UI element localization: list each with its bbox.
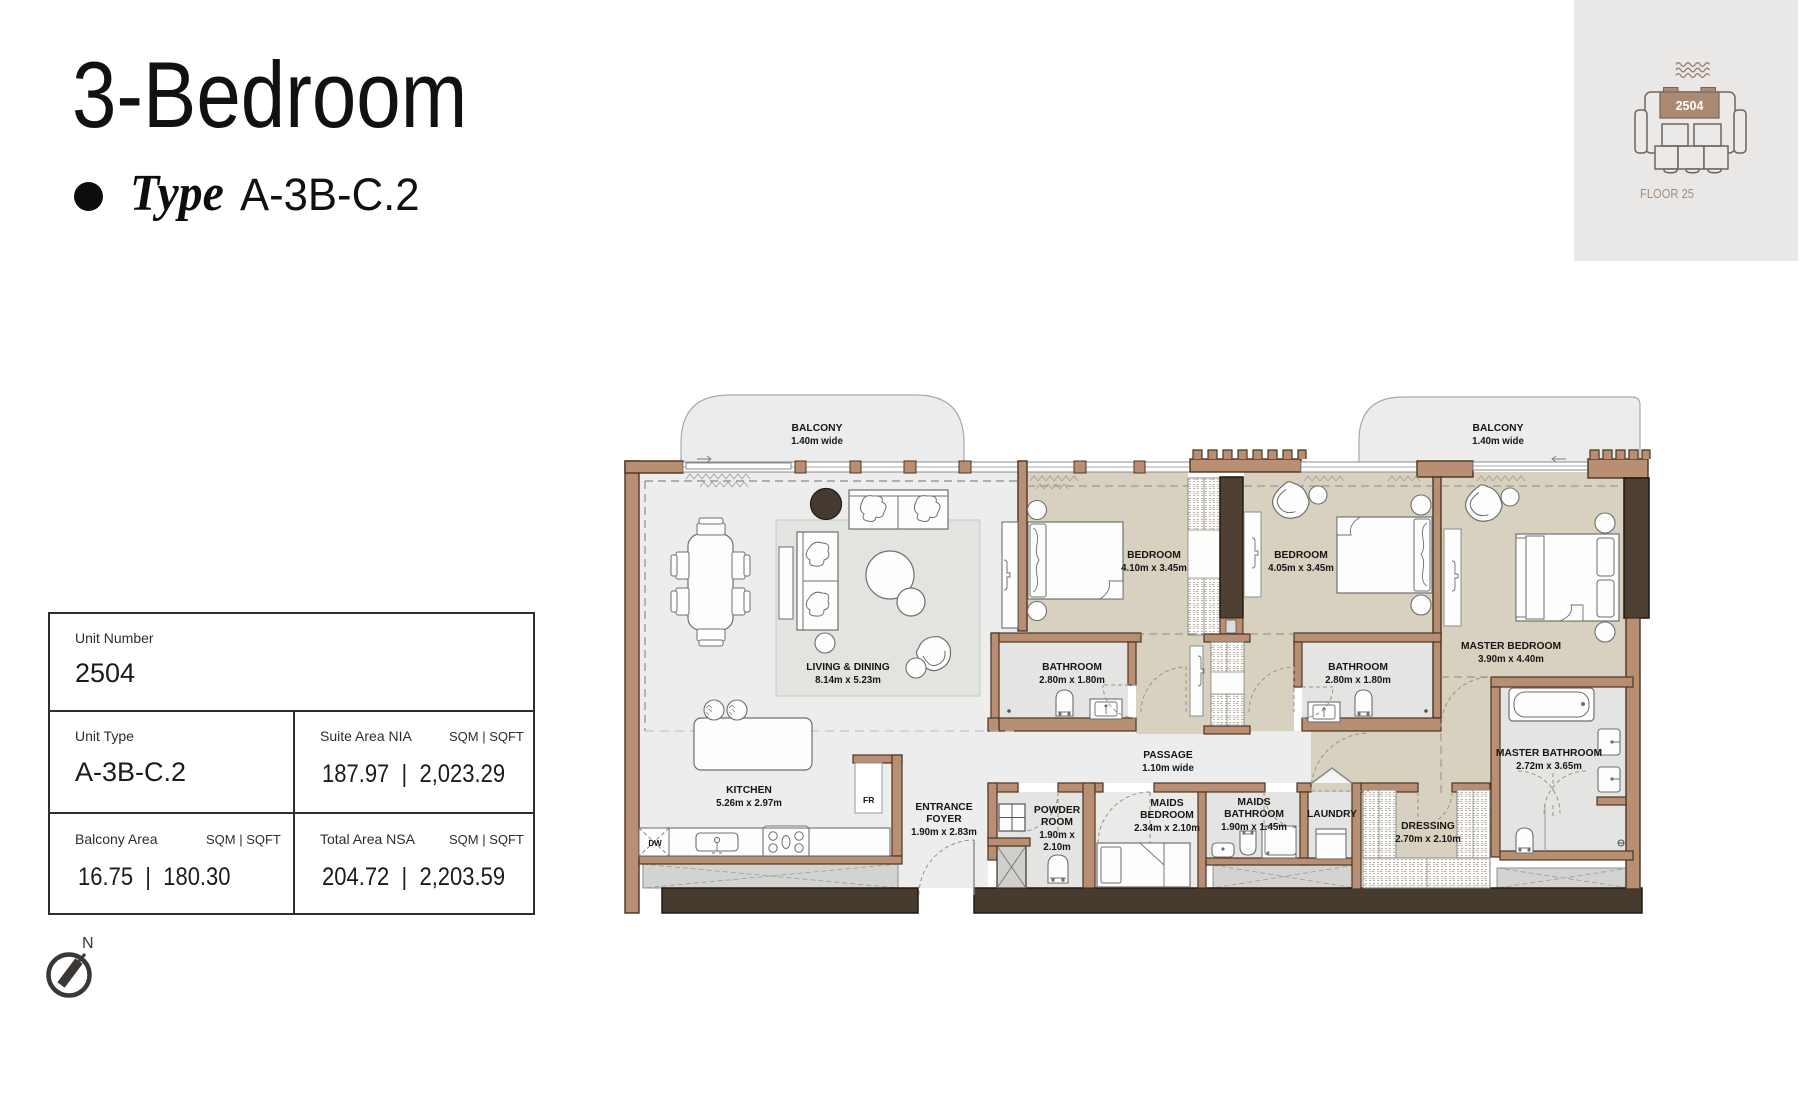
svg-text:1.90m x 1.45m: 1.90m x 1.45m xyxy=(1221,822,1287,833)
svg-text:ENTRANCE: ENTRANCE xyxy=(915,802,972,813)
svg-text:BEDROOM: BEDROOM xyxy=(1274,550,1328,561)
svg-text:2.72m x 3.65m: 2.72m x 3.65m xyxy=(1516,761,1582,772)
svg-text:BATHROOM: BATHROOM xyxy=(1224,809,1284,820)
svg-text:FOYER: FOYER xyxy=(926,814,962,825)
svg-text:BATHROOM: BATHROOM xyxy=(1328,662,1388,673)
svg-text:FR: FR xyxy=(863,795,874,805)
svg-text:2.10m: 2.10m xyxy=(1043,842,1071,853)
svg-text:BALCONY: BALCONY xyxy=(1473,423,1524,434)
svg-text:2.80m x 1.80m: 2.80m x 1.80m xyxy=(1325,675,1391,686)
svg-text:BEDROOM: BEDROOM xyxy=(1140,810,1194,821)
svg-text:LIVING & DINING: LIVING & DINING xyxy=(806,662,890,673)
svg-text:1.40m wide: 1.40m wide xyxy=(1472,436,1524,447)
svg-text:MASTER BEDROOM: MASTER BEDROOM xyxy=(1461,641,1561,652)
svg-text:4.05m x 3.45m: 4.05m x 3.45m xyxy=(1268,563,1334,574)
svg-text:DRESSING: DRESSING xyxy=(1401,821,1455,832)
svg-text:5.26m x 2.97m: 5.26m x 2.97m xyxy=(716,798,782,809)
svg-text:MAIDS: MAIDS xyxy=(1237,797,1270,808)
svg-text:LAUNDRY: LAUNDRY xyxy=(1307,809,1357,820)
svg-text:1.90m x 2.83m: 1.90m x 2.83m xyxy=(911,827,977,838)
svg-text:MAIDS: MAIDS xyxy=(1150,798,1183,809)
svg-text:2.34m x 2.10m: 2.34m x 2.10m xyxy=(1134,823,1200,834)
svg-text:BEDROOM: BEDROOM xyxy=(1127,550,1181,561)
svg-text:KITCHEN: KITCHEN xyxy=(726,785,772,796)
svg-text:ROOM: ROOM xyxy=(1041,817,1073,828)
svg-text:3.90m x 4.40m: 3.90m x 4.40m xyxy=(1478,654,1544,665)
svg-text:BATHROOM: BATHROOM xyxy=(1042,662,1102,673)
svg-text:BALCONY: BALCONY xyxy=(792,423,843,434)
svg-text:DW: DW xyxy=(648,839,662,848)
svg-text:2.80m x 1.80m: 2.80m x 1.80m xyxy=(1039,675,1105,686)
svg-text:1.10m wide: 1.10m wide xyxy=(1142,763,1194,774)
svg-text:1.90m x: 1.90m x xyxy=(1039,830,1075,841)
svg-text:8.14m x 5.23m: 8.14m x 5.23m xyxy=(815,675,881,686)
svg-text:PASSAGE: PASSAGE xyxy=(1143,750,1193,761)
svg-text:MASTER BATHROOM: MASTER BATHROOM xyxy=(1496,748,1602,759)
svg-text:2.70m x 2.10m: 2.70m x 2.10m xyxy=(1395,834,1461,845)
svg-text:1.40m wide: 1.40m wide xyxy=(791,436,843,447)
svg-text:4.10m x 3.45m: 4.10m x 3.45m xyxy=(1121,563,1187,574)
svg-text:POWDER: POWDER xyxy=(1034,805,1081,816)
